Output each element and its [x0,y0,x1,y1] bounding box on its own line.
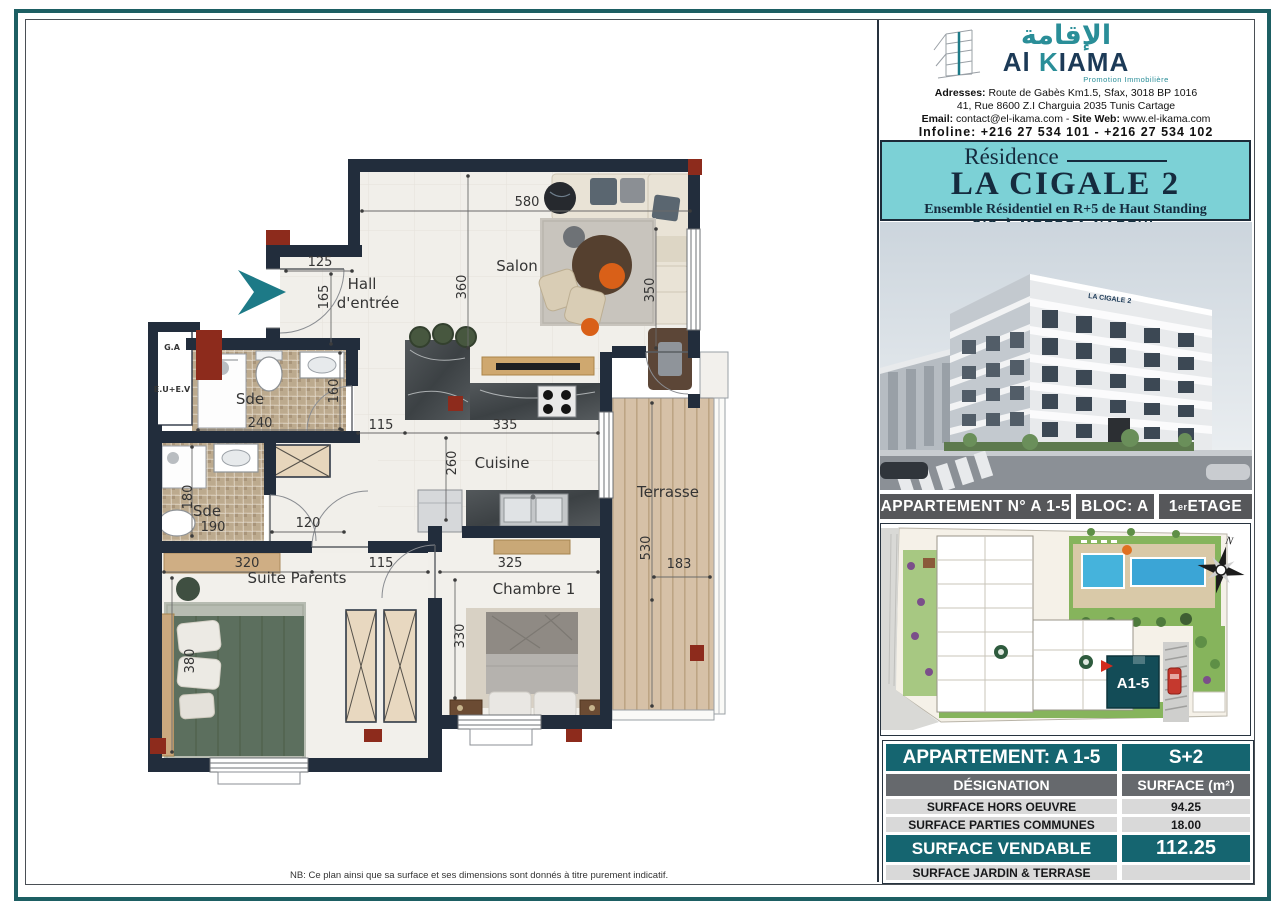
floor-plan: 580 360 350 125 165 240 160 115 335 260 … [25,20,877,883]
room-cuisine: Cuisine [475,454,530,472]
kitchen-island [405,324,476,420]
siteplan-panel: A1-5 [880,523,1251,736]
table-row-jardin-terrasse: SURFACE JARDIN & TERRASE [886,865,1250,880]
table-header-type: S+2 [1122,744,1250,771]
room-hall-line2: d'entrée [337,294,400,312]
table-header-row: APPARTEMENT: A 1-5 S+2 [886,744,1250,771]
row-value: 112.25 [1122,835,1250,862]
chambre1-furniture [450,608,610,725]
dim-240: 240 [248,416,273,431]
dim-160: 160 [327,379,342,404]
dim-335: 335 [493,418,518,433]
residence-subtitle: Ensemble Résidentiel en R+5 de Haut Stan… [882,202,1249,218]
siteplan-unit-label: A1-5 [1117,675,1150,692]
row-value: 18.00 [1122,817,1250,832]
dim-260: 260 [445,451,460,476]
room-sde2: Sde [193,502,221,520]
dim-380: 380 [183,649,198,674]
linen-closet [272,445,330,477]
table-row-parties-communes: SURFACE PARTIES COMMUNES 18.00 [886,817,1250,832]
logo-area: الإقامة Al KIAMA Promotion Immobilière A… [880,20,1252,140]
room-hall-line1: Hall [348,275,377,293]
row-label: SURFACE HORS OEUVRE [886,799,1117,814]
address-line1: Adresses: Route de Gabès Km1.5, Sfax, 30… [880,87,1252,100]
row-label: SURFACE VENDABLE [886,835,1117,862]
label-shaft-top: G.A [164,343,181,352]
brochure-page: 580 360 350 125 165 240 160 115 335 260 … [0,0,1280,905]
kitchen-counter-hob [470,383,600,420]
residence-title-block: Résidence LA CIGALE 2 Ensemble Résidenti… [880,140,1251,221]
dim-115b: 115 [369,556,394,571]
surface-table: APPARTEMENT: A 1-5 S+2 DÉSIGNATION SURFA… [882,740,1254,884]
row-value: 94.25 [1122,799,1250,814]
table-col-designation: DÉSIGNATION [886,774,1117,796]
room-terrasse: Terrasse [636,483,699,501]
apartment-bar: APPARTEMENT N° A 1-5 BLOC: A 1er ETAGE [880,494,1252,519]
bloc-badge: BLOC: A [1076,494,1154,519]
label-shaft: E.U+E.V [154,385,191,394]
dim-530: 530 [639,536,654,561]
dim-360: 360 [455,275,470,300]
room-salon: Salon [496,257,538,275]
dim-115a: 115 [369,418,394,433]
table-subheader-row: DÉSIGNATION SURFACE (m²) [886,774,1250,796]
room-sde1: Sde [236,390,264,408]
right-panel: الإقامة Al KIAMA Promotion Immobilière A… [880,20,1252,883]
dim-125: 125 [308,255,333,270]
room-chambre1: Chambre 1 [493,580,576,598]
dim-350: 350 [643,278,658,303]
address-infoline: Infoline: +216 27 534 101 - +216 27 534 … [880,125,1252,140]
address-block: Adresses: Route de Gabès Km1.5, Sfax, 30… [880,87,1252,141]
tv-console [482,357,594,375]
salon-ottoman [648,328,692,390]
dim-325: 325 [498,556,523,571]
row-value [1122,865,1250,880]
room-suite-parents: Suite Parents [248,569,347,587]
dim-330: 330 [453,624,468,649]
table-col-surface: SURFACE (m²) [1122,774,1250,796]
apartment-number-badge: APPARTEMENT N° A 1-5 [880,494,1071,519]
building-render: LA CIGALE 2 [880,222,1252,490]
row-label: SURFACE PARTIES COMMUNES [886,817,1117,832]
dim-183: 183 [667,557,692,572]
residence-underline [1067,160,1167,162]
building-wireframe-icon [932,24,990,84]
table-row-vendable: SURFACE VENDABLE 112.25 [886,835,1250,862]
address-line3: Email: contact@el-ikama.com - Site Web: … [880,113,1252,126]
footer-note: NB: Ce plan ainsi que sa surface et ses … [290,870,668,881]
siteplan-unit-a15: A1-5 [1101,656,1159,708]
residence-name: LA CIGALE 2 [882,170,1249,200]
dim-190: 190 [201,520,226,535]
dim-120: 120 [296,516,321,531]
row-label: SURFACE JARDIN & TERRASE [886,865,1117,880]
table-row-hors-oeuvre: SURFACE HORS OEUVRE 94.25 [886,799,1250,814]
table-header-apartment: APPARTEMENT: A 1-5 [886,744,1117,771]
panel-divider [877,20,879,882]
dim-580: 580 [515,195,540,210]
floor-badge: 1er ETAGE [1159,494,1252,519]
dim-165: 165 [317,285,332,310]
address-line2: 41, Rue 8600 Z.I Charguia 2035 Tunis Car… [880,100,1252,113]
